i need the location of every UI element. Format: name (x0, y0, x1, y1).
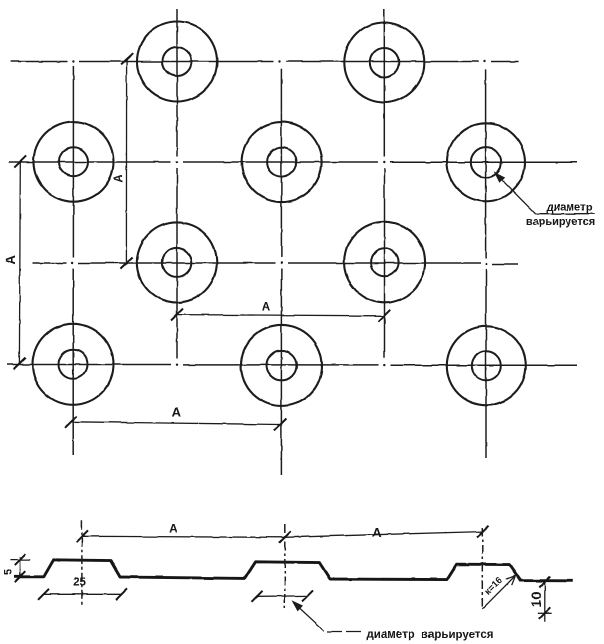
svg-text:А: А (169, 521, 178, 535)
svg-text:А: А (372, 525, 382, 540)
svg-text:А: А (2, 255, 18, 265)
svg-text:к=16: к=16 (482, 575, 505, 598)
svg-text:А: А (262, 301, 270, 313)
svg-text:А: А (114, 174, 126, 182)
svg-text:варьируется: варьируется (526, 216, 595, 228)
svg-text:диаметр: диаметр (546, 202, 592, 214)
svg-text:5: 5 (3, 569, 15, 575)
svg-text:25: 25 (73, 577, 86, 589)
svg-text:10: 10 (528, 591, 544, 607)
svg-text:диаметр варьируется: диаметр варьируется (367, 629, 494, 641)
svg-text:А: А (172, 404, 182, 419)
